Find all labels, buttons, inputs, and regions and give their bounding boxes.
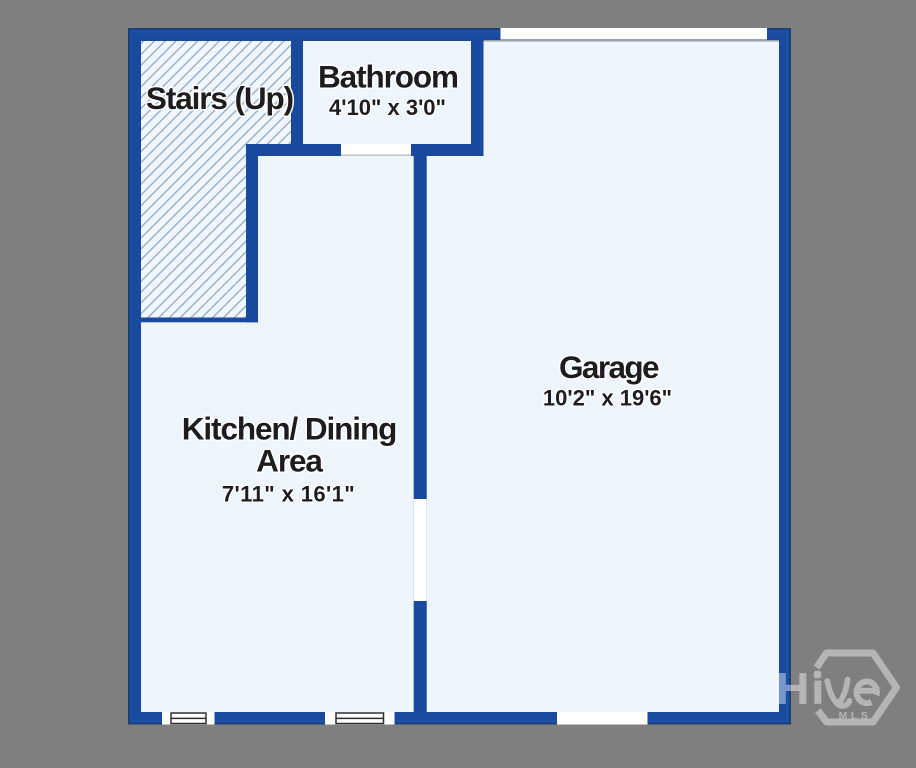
- svg-text:Garage: Garage: [559, 349, 659, 385]
- svg-text:Bathroom: Bathroom: [318, 59, 458, 95]
- svg-text:4'10" x 3'0": 4'10" x 3'0": [329, 95, 446, 120]
- svg-text:Kitchen/ Dining: Kitchen/ Dining: [182, 411, 397, 447]
- svg-text:Area: Area: [256, 443, 323, 479]
- svg-text:Stairs (Up): Stairs (Up): [146, 80, 293, 116]
- svg-text:7'11" x 16'1": 7'11" x 16'1": [222, 482, 355, 507]
- svg-text:10'2" x 19'6": 10'2" x 19'6": [543, 386, 672, 411]
- svg-text:MLS: MLS: [839, 710, 872, 722]
